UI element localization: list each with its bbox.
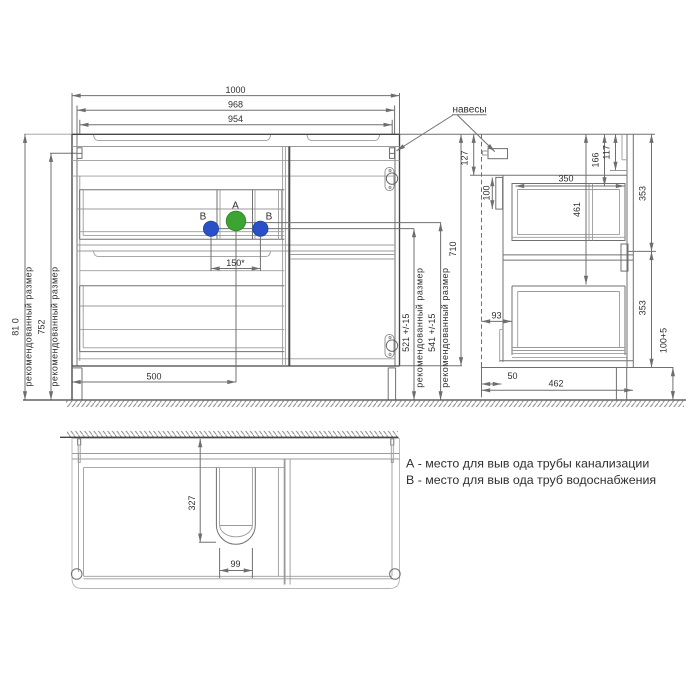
svg-text:541 +/-15: 541 +/-15 xyxy=(427,314,437,352)
svg-text:1000: 1000 xyxy=(225,85,245,95)
svg-text:50: 50 xyxy=(507,371,517,381)
svg-text:327: 327 xyxy=(187,495,197,510)
svg-text:353: 353 xyxy=(638,186,648,201)
svg-text:461: 461 xyxy=(572,202,582,217)
svg-text:462: 462 xyxy=(548,378,563,388)
svg-text:рекомендованный размер: рекомендованный размер xyxy=(50,266,60,386)
svg-text:710: 710 xyxy=(448,241,458,256)
svg-text:B: B xyxy=(200,211,207,222)
svg-text:100+5: 100+5 xyxy=(659,328,669,353)
svg-text:B: B xyxy=(266,211,273,222)
svg-text:500: 500 xyxy=(146,372,161,382)
svg-text:127: 127 xyxy=(460,150,470,165)
svg-text:рекомендованный размер: рекомендованный размер xyxy=(440,267,450,387)
svg-text:350: 350 xyxy=(558,174,573,184)
svg-text:100: 100 xyxy=(482,185,492,200)
svg-text:рекомендованный размер: рекомендованный размер xyxy=(415,267,425,387)
svg-text:рекомендованный размер: рекомендованный размер xyxy=(24,266,34,386)
svg-text:99: 99 xyxy=(230,559,240,569)
svg-text:А - место для выв ода трубы ка: А - место для выв ода трубы канализации xyxy=(406,456,649,470)
svg-text:навесы: навесы xyxy=(452,105,486,116)
svg-text:521 +/-15: 521 +/-15 xyxy=(401,314,411,352)
svg-text:166: 166 xyxy=(591,152,601,167)
svg-text:353: 353 xyxy=(638,300,648,315)
svg-text:752: 752 xyxy=(37,319,47,334)
svg-text:954: 954 xyxy=(228,114,243,124)
svg-text:A: A xyxy=(232,200,239,211)
svg-text:968: 968 xyxy=(228,100,243,110)
svg-text:150*: 150* xyxy=(226,258,245,268)
svg-text:93: 93 xyxy=(491,310,501,320)
svg-text:117: 117 xyxy=(602,145,612,159)
svg-text:В - место для выв ода труб вод: В - место для выв ода труб водоснабжения xyxy=(406,473,656,487)
svg-text:81 0: 81 0 xyxy=(11,318,21,336)
